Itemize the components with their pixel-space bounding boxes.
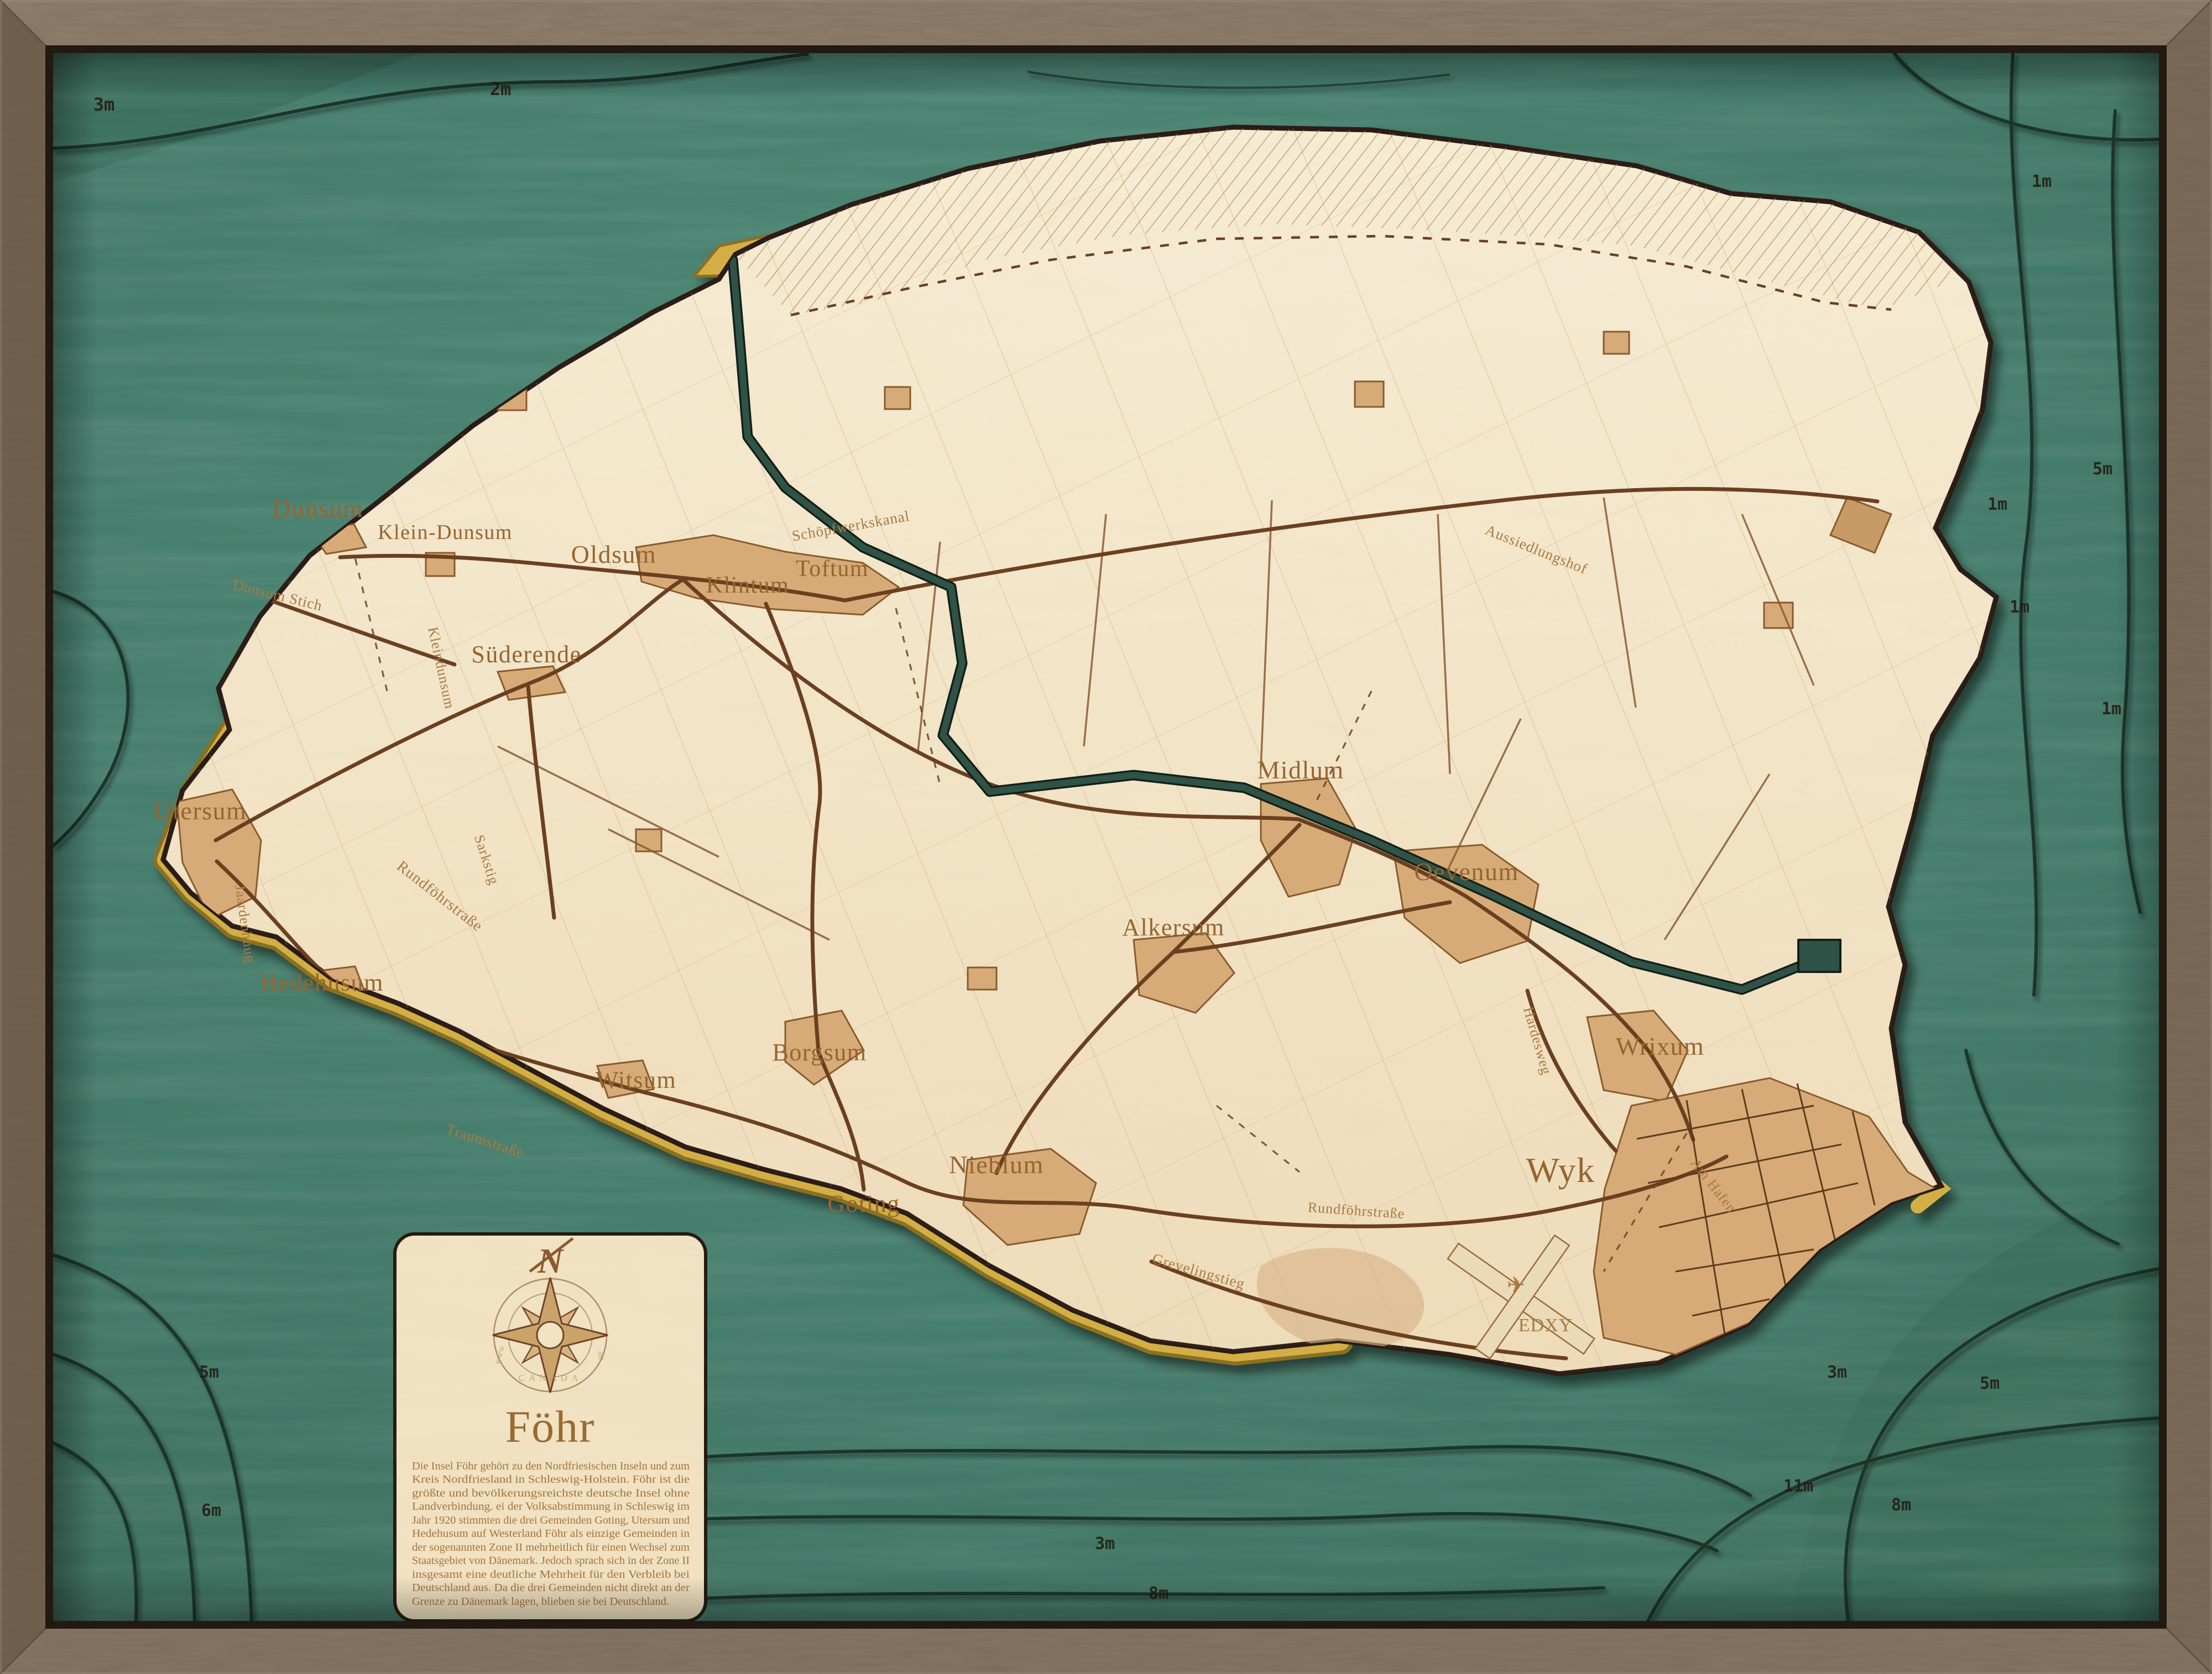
logo-watermark-bottom: CANADA	[519, 1373, 582, 1383]
town-label-witsum: Witsum	[596, 1066, 677, 1094]
town-label-oldsum: Oldsum	[571, 540, 657, 568]
farmstead	[1604, 332, 1629, 354]
legend-text-line: Die Insel Föhr gehört zu den Nordfriesis…	[412, 1460, 690, 1472]
town-label-hedehusum: Hedehusum	[260, 969, 384, 996]
depth-label: 5m	[1980, 1374, 2000, 1393]
depth-label: 1m	[1987, 495, 2007, 514]
shadow-top	[53, 53, 2159, 97]
town-label-suederende: Süderende	[471, 641, 581, 668]
legend-text-line: Kreis Nordfriesland in Schleswig-Holstei…	[412, 1473, 690, 1485]
town-label-klein-dunsum: Klein-Dunsum	[378, 521, 513, 544]
shadow-bottom	[53, 1577, 2159, 1621]
legend-text-line: Landverbindung. ei der Volksabstimmung i…	[412, 1500, 690, 1513]
compass-hub	[537, 1322, 564, 1348]
airplane-icon: ✈	[1507, 1273, 1526, 1298]
town-label-nieblum: Nieblum	[949, 1150, 1044, 1179]
depth-label: 5m	[199, 1363, 219, 1382]
shadow-right	[2115, 53, 2159, 1621]
airport-code-label: EDXY	[1519, 1315, 1573, 1336]
town-label-midlum: Midlum	[1257, 756, 1344, 784]
depth-label: 3m	[1827, 1363, 1847, 1382]
framed-wood-map: Dunsum Klein-Dunsum Oldsum Klintum Toftu…	[0, 0, 2212, 1674]
town-label-oevenum: Oevenum	[1414, 857, 1519, 886]
town-label-wyk: Wyk	[1526, 1150, 1595, 1190]
town-label-klintum: Klintum	[706, 573, 790, 598]
legend-text-line: größte und bevölkerungsreichste deutsche…	[412, 1487, 690, 1499]
legend-text-line: Jahr 1920 stimmten die drei Gemeinden Go…	[412, 1514, 690, 1526]
depth-label: 5m	[2093, 459, 2112, 479]
map-canvas: Dunsum Klein-Dunsum Oldsum Klintum Toftu…	[0, 0, 2212, 1674]
town-label-borgsum: Borgsum	[772, 1039, 867, 1066]
shadow-left	[53, 53, 97, 1621]
canal-pond	[1798, 940, 1840, 972]
depth-label: 8m	[1891, 1495, 1911, 1515]
farmstead	[636, 829, 661, 851]
town-label-toftum: Toftum	[796, 556, 869, 582]
farmstead	[968, 967, 997, 990]
depth-label: 1m	[2010, 598, 2030, 617]
depth-label: 1m	[2032, 172, 2052, 191]
legend-text-line: Hedehusum auf Westerland Föhr als einzig…	[412, 1527, 690, 1540]
farmstead	[1355, 381, 1384, 407]
legend-panel: N www .de CANADA Föhr Die Insel Föhr geh…	[395, 1234, 706, 1621]
farmstead	[885, 387, 910, 409]
town-label-alkersum: Alkersum	[1122, 914, 1225, 941]
legend-text-line: der sogenannten Zone II mehrheitlich für…	[412, 1541, 690, 1553]
depth-label: 6m	[201, 1501, 221, 1520]
depth-label: 3m	[1095, 1534, 1115, 1553]
depth-label: 11m	[1783, 1477, 1813, 1496]
town-label-wrixum: Wrixum	[1616, 1032, 1704, 1060]
town-label-utersum: Utersum	[154, 797, 247, 825]
legend-title: Föhr	[505, 1401, 596, 1452]
legend-text-line: Staatsgebiet von Dänemark. Jedoch sprach…	[412, 1555, 690, 1567]
town-label-dunsum: Dunsum	[273, 494, 364, 522]
town-label-goting: Goting	[827, 1190, 900, 1217]
